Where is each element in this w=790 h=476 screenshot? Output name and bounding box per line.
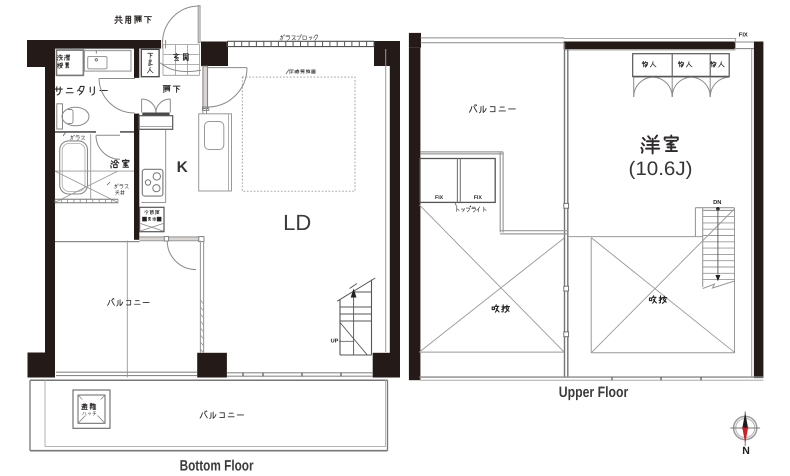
svg-text:Bottom Floor: Bottom Floor (180, 458, 254, 475)
svg-text:Upper Floor: Upper Floor (559, 384, 629, 401)
svg-text:FIX: FIX (435, 195, 444, 201)
svg-text:N: N (742, 445, 750, 457)
svg-text:DN: DN (713, 200, 721, 206)
svg-text:FIX: FIX (739, 32, 748, 38)
svg-text:FIX: FIX (474, 195, 483, 201)
svg-text:LD: LD (283, 210, 311, 235)
svg-text:UP: UP (331, 338, 339, 344)
svg-text:K: K (177, 159, 189, 176)
svg-text:(10.6J): (10.6J) (629, 158, 693, 180)
